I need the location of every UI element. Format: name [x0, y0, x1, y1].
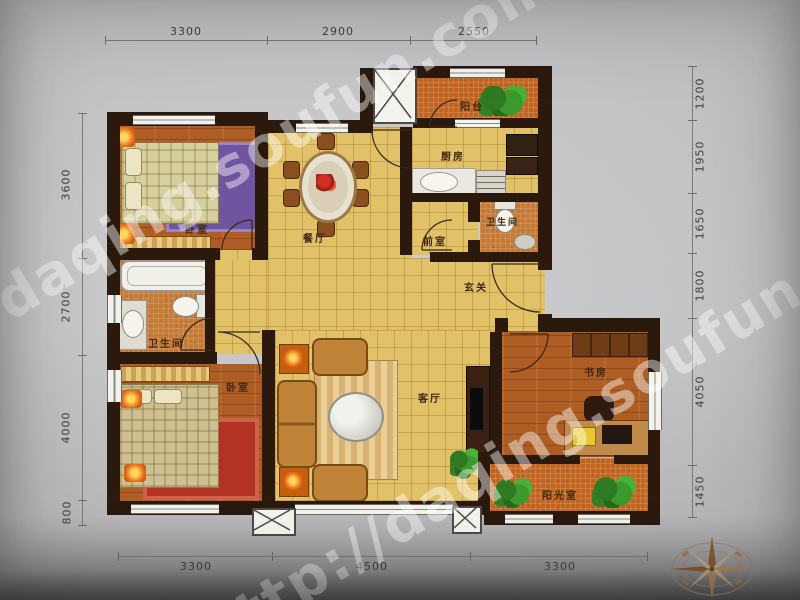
desk-chair: [584, 396, 614, 422]
tick: [688, 465, 697, 466]
dim-bottom-3: 3300: [544, 560, 576, 573]
dim-right-4: 1800: [694, 270, 707, 302]
desk-monitor: [602, 425, 632, 444]
wall: [400, 193, 545, 202]
dim-right-2: 1950: [694, 141, 707, 173]
wall: [495, 318, 508, 332]
tick: [78, 113, 87, 114]
bathroom2-sink: [514, 234, 536, 250]
armchair: [312, 464, 368, 502]
bay-window-pier: [252, 508, 296, 536]
tick: [267, 36, 268, 45]
floor-plan-photo: 3300 2900 2550 3300 4500 3300 3600 2700 …: [0, 0, 800, 600]
kitchen-fridge: [506, 134, 538, 156]
kitchen-stove: [506, 157, 538, 175]
wall: [546, 318, 660, 332]
wall: [107, 248, 220, 260]
wall: [205, 258, 215, 355]
living-plant: [450, 446, 480, 480]
living-lamp: [284, 472, 302, 490]
bedroom2-nightstand-lamp: [124, 464, 146, 482]
toilet-bowl: [172, 296, 199, 317]
tick: [647, 552, 648, 561]
tick: [470, 552, 471, 561]
tick: [78, 525, 87, 526]
sunroom-plant: [592, 476, 638, 508]
room-label-dining: 餐厅: [303, 230, 327, 245]
tick: [410, 36, 411, 45]
wall: [107, 352, 217, 364]
room-label-bathroom2: 卫生间: [486, 215, 519, 228]
wall: [468, 202, 480, 222]
dim-line-top: [105, 40, 537, 41]
coffee-table: [328, 392, 384, 442]
window: [578, 514, 630, 524]
room-label-anteroom: 前室: [423, 233, 447, 248]
compass-icon: [662, 534, 762, 600]
wall: [400, 202, 412, 255]
dim-right-6: 1450: [694, 476, 707, 508]
dim-line-left: [82, 113, 83, 525]
window: [133, 115, 215, 125]
tick: [78, 355, 87, 356]
dim-left-2: 2700: [60, 291, 73, 323]
tick: [688, 517, 697, 518]
bay-window-pier: [452, 506, 482, 534]
tick: [688, 120, 697, 121]
tick: [688, 193, 697, 194]
tick: [536, 36, 537, 45]
kitchen-sink: [420, 172, 458, 192]
study-wardrobe: [572, 333, 650, 357]
dim-left-3: 4000: [60, 412, 73, 444]
tick: [78, 258, 87, 259]
dim-top-2: 2900: [322, 25, 354, 38]
dining-table: [299, 151, 357, 223]
tick: [688, 253, 697, 254]
bedroom1-pillow: [125, 182, 142, 210]
room-label-balcony: 阳台: [460, 98, 484, 113]
dim-left-4: 800: [61, 501, 74, 525]
window: [648, 372, 662, 430]
window: [295, 504, 453, 515]
desk-item: [572, 427, 596, 446]
tick: [118, 552, 119, 561]
window: [505, 514, 553, 524]
window: [450, 68, 505, 78]
dim-right-3: 1650: [694, 208, 707, 240]
room-label-sunroom: 阳光室: [542, 487, 578, 502]
wall: [490, 455, 580, 464]
wall: [614, 455, 648, 464]
wall: [252, 248, 268, 260]
balcony-plant: [478, 86, 530, 116]
wall: [255, 112, 268, 258]
sofa: [277, 380, 317, 468]
room-label-bedroom1: 卧室: [185, 221, 209, 236]
corridor-floor: [215, 258, 268, 354]
tick: [78, 500, 87, 501]
kitchen-dishwasher: [476, 170, 506, 195]
wall: [262, 330, 275, 501]
wall: [360, 68, 373, 133]
wall: [538, 262, 552, 270]
bathtub: [120, 260, 214, 292]
dim-top-3: 2550: [458, 25, 490, 38]
bedroom2-wardrobe: [120, 366, 210, 382]
wall: [400, 127, 412, 197]
window: [296, 123, 348, 133]
bedroom2-pillow: [154, 389, 182, 404]
tick: [105, 36, 106, 45]
wall: [538, 66, 552, 262]
flower-centerpiece: [316, 174, 336, 192]
window: [107, 295, 122, 323]
dining-chair: [317, 133, 335, 150]
dining-chair: [283, 189, 300, 207]
room-label-hall: 玄关: [464, 279, 488, 294]
window: [455, 119, 500, 128]
dim-left-1: 3600: [60, 169, 73, 201]
tick: [688, 66, 697, 67]
tv-screen: [470, 388, 483, 430]
bedroom2-nightstand-lamp: [120, 390, 142, 408]
sunroom-plant: [494, 478, 534, 508]
dim-right-1: 1200: [694, 78, 707, 110]
room-label-kitchen: 厨房: [441, 148, 465, 163]
living-lamp: [284, 349, 302, 367]
dim-bottom-1: 3300: [180, 560, 212, 573]
dim-top-1: 3300: [170, 25, 202, 38]
window: [131, 504, 219, 514]
window: [107, 370, 122, 402]
room-label-bathroom1: 卫生间: [148, 335, 184, 350]
room-label-living: 客厅: [418, 390, 442, 405]
dining-chair: [283, 161, 300, 179]
dim-right-5: 4050: [694, 376, 707, 408]
tick: [688, 318, 697, 319]
tick: [272, 552, 273, 561]
bathroom1-sink: [122, 310, 144, 338]
armchair: [312, 338, 368, 376]
dim-line-bottom: [118, 556, 648, 557]
room-label-bedroom2: 卧室: [226, 379, 250, 394]
shaft: [373, 68, 417, 124]
dim-bottom-2: 4500: [356, 560, 388, 573]
wall: [490, 332, 502, 457]
bedroom1-pillow: [125, 148, 142, 176]
wall: [430, 252, 542, 262]
room-label-study: 书房: [584, 364, 608, 379]
